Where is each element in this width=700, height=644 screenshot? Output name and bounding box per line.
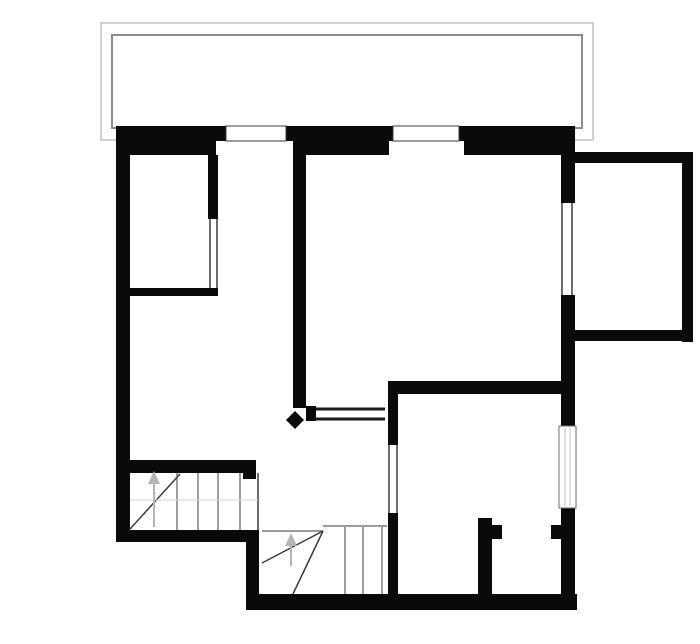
upperleft-room-right-wall	[208, 155, 218, 219]
right-wall-window-upper	[561, 203, 575, 295]
extension-room-right-wall	[682, 152, 693, 342]
right-exterior-wall-top	[561, 141, 575, 203]
door-leaf-marker	[286, 411, 304, 429]
right-exterior-wall-mid	[561, 295, 575, 428]
terrace-door-symbol-left	[226, 126, 286, 141]
lower-stair-winder-1	[262, 531, 323, 563]
top-wall-upper-mid	[286, 126, 393, 141]
top-wall-lower-right	[464, 141, 575, 155]
closet-partition-wall	[478, 518, 492, 596]
bottomright-room-top-wall	[388, 381, 575, 394]
markers-layer	[148, 411, 304, 546]
top-wall-lower-left	[116, 141, 216, 155]
bottomright-room-left-wall-upper	[388, 381, 398, 445]
central-partition-wall	[293, 155, 306, 408]
stair-bottom-wall	[116, 530, 259, 542]
closet-door-jamb-right	[551, 525, 561, 539]
walls-and-windows-layer	[101, 23, 693, 610]
stair-top-wall-cap	[243, 460, 256, 479]
extension-room-bottom-wall	[575, 330, 693, 341]
floor-plan-drawing	[0, 0, 700, 644]
lower-stair-arrow-head	[285, 533, 297, 546]
top-wall-lower-mid	[293, 141, 389, 155]
terrace-inner-outline	[112, 35, 582, 128]
left-exterior-wall	[116, 141, 130, 542]
right-wall-window-lower	[559, 426, 576, 508]
floor-plan	[0, 0, 700, 644]
bottom-exterior-wall	[246, 594, 577, 610]
extension-room-top-wall	[575, 152, 693, 163]
stair-top-wall	[116, 460, 256, 473]
closet-door-jamb-left	[492, 525, 502, 539]
upperleft-room-bottom-wall	[116, 288, 218, 296]
terrace-door-symbol-right	[393, 126, 459, 141]
top-wall-upper-left	[116, 126, 226, 141]
top-wall-upper-right	[459, 126, 575, 141]
terrace-outer-outline	[101, 23, 593, 140]
lower-stair-winder-2	[293, 531, 323, 594]
central-wall-end-cap	[306, 406, 316, 421]
